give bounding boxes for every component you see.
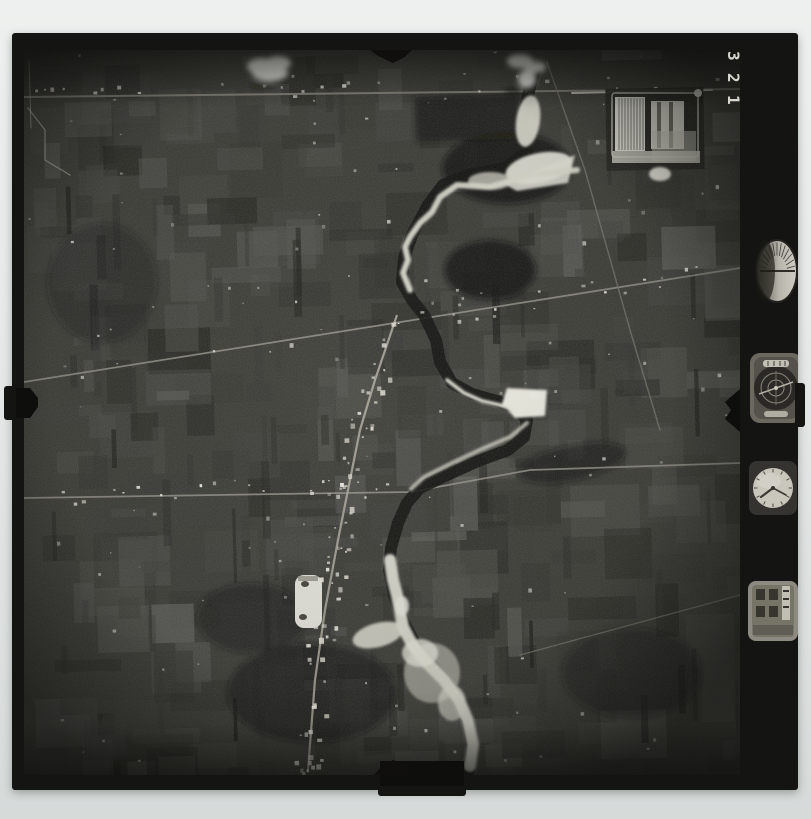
fiducial-tab-bottom bbox=[378, 786, 466, 796]
fiducial-tab-left bbox=[4, 386, 16, 420]
frame-digit: 3 bbox=[724, 51, 743, 61]
frame-number: 3 2 1 bbox=[724, 51, 743, 105]
aerial-photograph: 3 2 1 bbox=[12, 33, 798, 790]
frame-counter-panel bbox=[748, 581, 798, 641]
level-indicator-dial bbox=[750, 353, 798, 423]
frame-digit: 1 bbox=[724, 95, 743, 105]
vignette bbox=[24, 50, 740, 775]
clock-dial bbox=[749, 461, 797, 515]
frame-digit: 2 bbox=[724, 73, 743, 83]
altimeter-dial bbox=[755, 240, 797, 302]
fiducial-tab-right bbox=[795, 383, 805, 427]
photo-print: 3 2 1 bbox=[12, 33, 798, 790]
scan-background: { "frame_number": { "digits": ["3", "2",… bbox=[0, 0, 811, 819]
